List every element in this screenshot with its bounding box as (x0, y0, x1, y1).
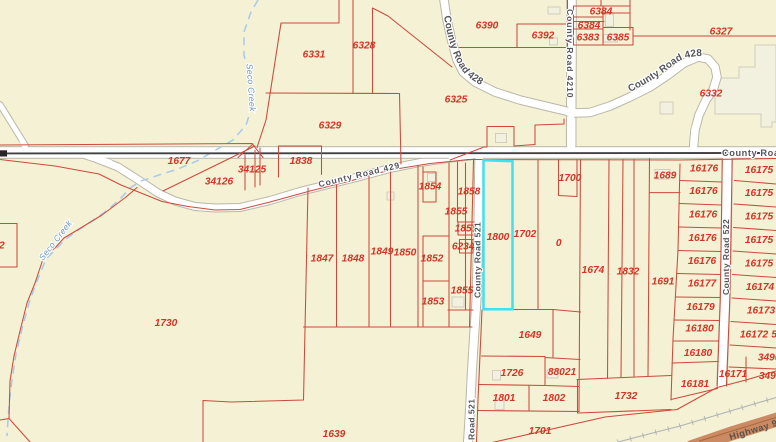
svg-text:6328: 6328 (353, 41, 376, 52)
svg-text:16175: 16175 (745, 259, 774, 270)
svg-text:County Road 521: County Road 521 (472, 222, 482, 298)
svg-text:1849: 1849 (371, 247, 394, 258)
svg-text:1853: 1853 (422, 297, 445, 308)
svg-text:1730: 1730 (155, 318, 178, 329)
svg-text:1838: 1838 (290, 156, 313, 167)
svg-text:1702: 1702 (514, 229, 537, 240)
svg-text:16176: 16176 (688, 233, 717, 244)
svg-text:34905: 34905 (758, 353, 776, 364)
svg-text:16176: 16176 (688, 256, 717, 267)
svg-text:6384: 6384 (590, 7, 613, 18)
svg-text:1726: 1726 (501, 368, 524, 379)
svg-text:1677: 1677 (168, 156, 192, 167)
svg-text:6383: 6383 (577, 33, 600, 44)
svg-text:16180: 16180 (684, 348, 713, 359)
svg-text:6331: 6331 (303, 50, 326, 61)
svg-text:16173: 16173 (747, 306, 776, 317)
svg-text:6329: 6329 (319, 121, 342, 132)
svg-text:16175: 16175 (745, 212, 774, 223)
svg-text:16181: 16181 (681, 379, 710, 390)
svg-text:County Road 522: County Road 522 (721, 219, 731, 295)
svg-text:34905: 34905 (759, 371, 776, 382)
svg-text:16175: 16175 (745, 235, 774, 246)
svg-text:County Road 4210: County Road 4210 (565, 9, 575, 98)
svg-text:6384: 6384 (578, 21, 601, 32)
svg-text:1852: 1852 (421, 254, 444, 265)
svg-text:6392: 6392 (532, 31, 555, 42)
svg-text:16175: 16175 (745, 188, 774, 199)
svg-text:1848: 1848 (342, 254, 365, 265)
svg-text:1639: 1639 (323, 429, 346, 440)
svg-text:34126: 34126 (205, 177, 234, 188)
svg-text:16171: 16171 (719, 369, 748, 380)
svg-text:1802: 1802 (543, 393, 566, 404)
svg-text:1800: 1800 (487, 232, 510, 243)
svg-text:16176: 16176 (689, 210, 718, 221)
svg-text:6325: 6325 (445, 95, 468, 106)
svg-text:1855: 1855 (451, 286, 474, 297)
svg-text:1674: 1674 (582, 265, 605, 276)
svg-text:16176: 16176 (690, 164, 719, 175)
svg-text:88021: 88021 (548, 367, 577, 378)
svg-text:16179: 16179 (686, 302, 715, 313)
svg-text:6390: 6390 (476, 21, 499, 32)
svg-text:6327: 6327 (710, 27, 734, 38)
svg-text:16175: 16175 (745, 165, 774, 176)
svg-text:1847: 1847 (311, 254, 335, 265)
svg-text:34125: 34125 (238, 165, 267, 176)
svg-text:1689: 1689 (654, 171, 677, 182)
svg-text:16177: 16177 (688, 279, 718, 290)
svg-text:Road 521: Road 521 (467, 399, 477, 440)
svg-text:1832: 1832 (617, 267, 640, 278)
svg-text:6332: 6332 (700, 89, 723, 100)
svg-text:1855: 1855 (445, 207, 468, 218)
svg-text:1732: 1732 (615, 391, 638, 402)
svg-text:16174: 16174 (746, 282, 775, 293)
svg-text:County Road 4: County Road 4 (722, 148, 776, 158)
svg-text:52: 52 (771, 330, 776, 341)
svg-text:6385: 6385 (607, 33, 630, 44)
svg-text:16180: 16180 (685, 324, 714, 335)
svg-text:1801: 1801 (493, 393, 516, 404)
svg-text:1700: 1700 (559, 173, 582, 184)
svg-text:16172: 16172 (740, 330, 769, 341)
svg-text:1858: 1858 (458, 187, 481, 198)
svg-text:32: 32 (0, 241, 5, 252)
svg-text:16176: 16176 (689, 186, 718, 197)
svg-text:1701: 1701 (529, 426, 552, 437)
svg-text:0: 0 (556, 238, 562, 249)
svg-text:1649: 1649 (519, 330, 542, 341)
svg-text:1850: 1850 (394, 248, 417, 259)
svg-text:1854: 1854 (419, 182, 442, 193)
svg-text:1691: 1691 (652, 277, 675, 288)
